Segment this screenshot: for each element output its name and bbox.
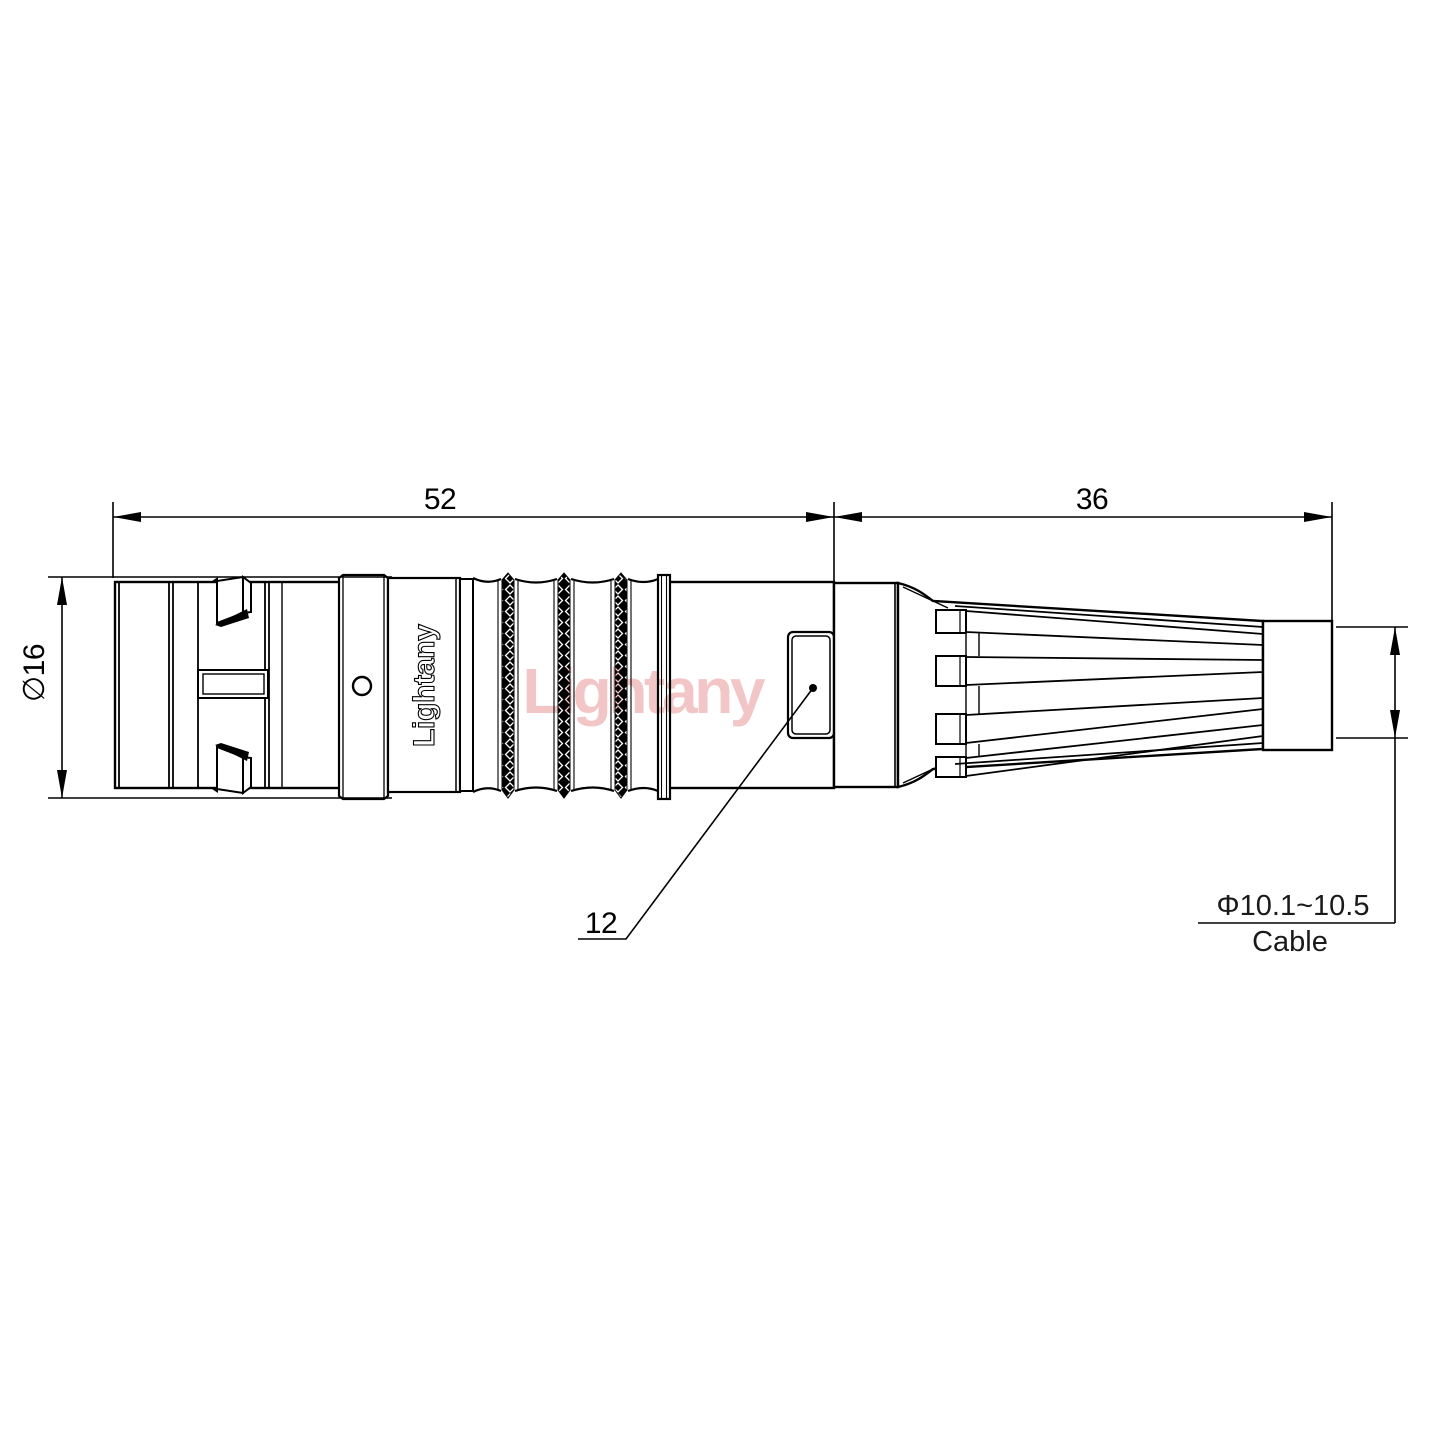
- dim-cable-range-label: Φ10.1~10.5: [1217, 890, 1370, 922]
- dim-boot-length-label: 36: [1076, 483, 1108, 516]
- dim-front-diameter-label: ∅16: [18, 644, 51, 702]
- engraving-text: Lightany: [408, 623, 441, 747]
- dim-front-length: 52: [113, 483, 834, 581]
- dim-nut-label: 12: [585, 907, 617, 940]
- collar-ring: [339, 575, 388, 799]
- cable-label: Cable: [1252, 926, 1328, 958]
- dim-front-length-label: 52: [424, 483, 456, 516]
- latch-groove-inner: [203, 674, 264, 694]
- strain-relief-boot: [834, 583, 1332, 787]
- connector-drawing-canvas: Lightany: [0, 0, 1440, 1440]
- branding-barrel: Lightany: [388, 578, 460, 792]
- collar-hole: [353, 677, 371, 695]
- cable-end: [1263, 621, 1332, 750]
- technical-drawing-page: Lightany: [0, 0, 1440, 1440]
- watermark-text: Lightany: [523, 655, 768, 727]
